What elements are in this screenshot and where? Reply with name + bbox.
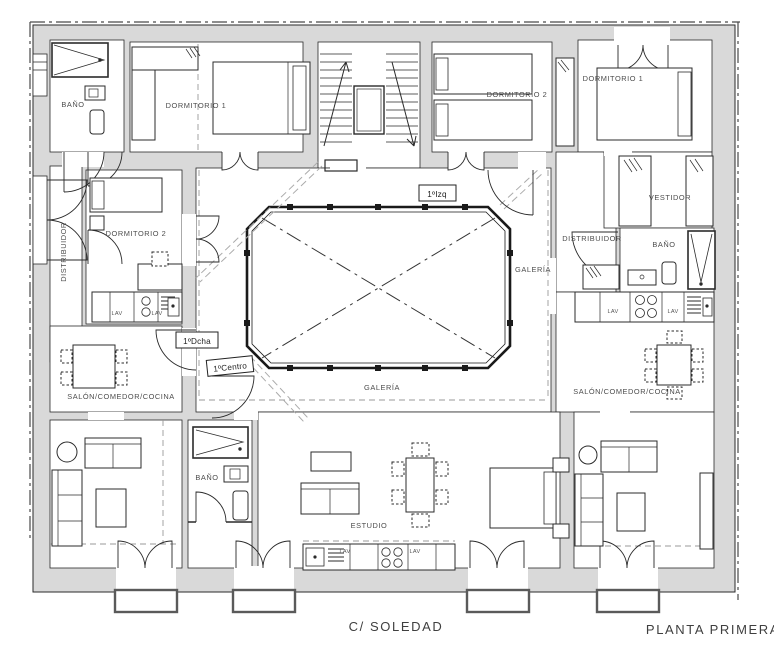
label-vestidor: VESTIDOR: [649, 193, 691, 202]
label-lav-s2: LAV: [409, 549, 420, 555]
wardrobe-wall-n: [556, 58, 574, 146]
cabinet-e: [583, 265, 619, 289]
unit-tag-dcha: 1ºDcha: [176, 332, 218, 348]
label-distribuidor-w: DISTRIBUIDOR: [59, 222, 68, 282]
unit-dcha-label: 1ºDcha: [183, 337, 211, 346]
label-bano-s: BAÑO: [195, 473, 218, 482]
toilet-e: [662, 262, 676, 284]
kitchen-counter-w: [92, 292, 182, 322]
label-galeria-e: GALERÍA: [515, 265, 551, 274]
coffee-table-se: [617, 493, 645, 531]
floor-plan-sheet: 1ºIzq 1ºDcha 1ºCentro BAÑO DORMITORIO 1 …: [0, 0, 774, 654]
shower-e: [688, 231, 715, 289]
sheet-captions: C/ SOLEDAD PLANTA PRIMERA: [349, 619, 774, 637]
unit-tag-izq: 1ºIzq: [419, 185, 456, 201]
label-dormitorio2-n: DORMITORIO 2: [487, 90, 548, 99]
label-lav-s1: LAV: [339, 549, 350, 555]
label-lav-w2: LAV: [151, 311, 162, 317]
label-distribuidor-e: DISTRIBUIDOR: [562, 234, 622, 243]
label-salon-w: SALÓN/COMEDOR/COCINA: [67, 392, 175, 401]
plan-title: PLANTA PRIMERA: [646, 622, 774, 637]
label-lav-e2: LAV: [667, 309, 678, 315]
bed-dormitorio1-nw: [213, 62, 310, 134]
label-lav-w1: LAV: [111, 311, 122, 317]
floor-plan-drawing: 1ºIzq 1ºDcha 1ºCentro BAÑO DORMITORIO 1 …: [0, 0, 774, 654]
washbasin-nw-bowl: [89, 89, 98, 97]
plant-sw: [57, 442, 77, 462]
toilet-s: [233, 491, 248, 520]
toilet-nw: [90, 110, 104, 134]
cabinet-se: [700, 473, 713, 549]
washbasin-e-bowl: [640, 275, 644, 279]
shower-s: [193, 427, 248, 458]
dining-table-s: [406, 458, 434, 512]
label-galeria-s: GALERÍA: [364, 383, 400, 392]
unit-izq-label: 1ºIzq: [427, 190, 447, 199]
kitchen-counter-s: [303, 544, 455, 570]
balconies: [115, 590, 659, 612]
label-dormitorio2-w: DORMITORIO 2: [106, 229, 167, 238]
door-opening-left: [33, 176, 47, 264]
coffee-table-sw: [96, 489, 126, 527]
label-dormitorio1-ne: DORMITORIO 1: [583, 74, 644, 83]
kitchen-counter-e: [575, 292, 714, 322]
courtyard: [244, 204, 513, 371]
street-caption: C/ SOLEDAD: [349, 619, 444, 634]
label-lav-e1: LAV: [607, 309, 618, 315]
label-estudio: ESTUDIO: [351, 521, 388, 530]
window-left: [33, 54, 47, 96]
shower-nw: [52, 43, 108, 77]
plant-se: [579, 446, 597, 464]
room-staircase: [318, 42, 420, 168]
label-salon-e: SALÓN/COMEDOR/COCINA: [573, 387, 681, 396]
label-bano-e: BAÑO: [652, 240, 675, 249]
washbasin-s-bowl: [230, 469, 240, 479]
label-bano-nw: BAÑO: [61, 100, 84, 109]
label-dormitorio1-nw: DORMITORIO 1: [166, 101, 227, 110]
